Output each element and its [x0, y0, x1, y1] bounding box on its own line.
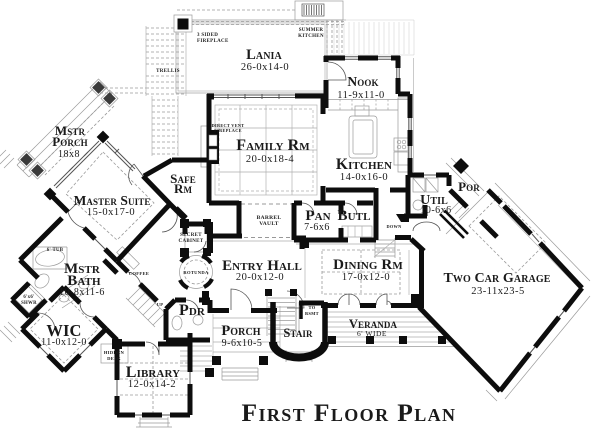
- svg-text:10-6x6: 10-6x6: [420, 205, 451, 216]
- svg-text:20-0x12-0: 20-0x12-0: [236, 272, 284, 283]
- svg-text:12-0x14-2: 12-0x14-2: [128, 379, 176, 390]
- svg-text:11-0x12-0: 11-0x12-0: [41, 337, 87, 348]
- svg-text:KITCHEN: KITCHEN: [298, 34, 324, 39]
- svg-text:DESK: DESK: [107, 356, 121, 361]
- svg-text:HIDDEN: HIDDEN: [104, 350, 125, 355]
- svg-text:SUMMER: SUMMER: [299, 28, 324, 33]
- svg-text:6' WIDE: 6' WIDE: [357, 329, 387, 338]
- svg-text:SHWR: SHWR: [21, 301, 37, 306]
- svg-text:11-9x11-0: 11-9x11-0: [337, 90, 384, 101]
- svg-text:TO: TO: [308, 305, 315, 310]
- svg-text:First Floor Plan: First Floor Plan: [242, 398, 457, 427]
- svg-text:Lania: Lania: [246, 47, 282, 63]
- svg-text:TRELLIS: TRELLIS: [156, 69, 180, 74]
- svg-text:BSMT: BSMT: [305, 311, 319, 316]
- svg-text:Family Rm: Family Rm: [236, 137, 310, 154]
- svg-text:COFFEE: COFFEE: [129, 271, 149, 276]
- svg-text:20-0x18-4: 20-0x18-4: [246, 154, 294, 165]
- svg-text:Porch: Porch: [221, 323, 260, 339]
- svg-text:Porch: Porch: [52, 134, 87, 149]
- svg-text:ROTUNDA: ROTUNDA: [183, 270, 209, 275]
- svg-text:Stair: Stair: [283, 326, 313, 340]
- svg-text:Pdr: Pdr: [179, 302, 206, 319]
- svg-text:14-0x16-0: 14-0x16-0: [340, 172, 388, 183]
- svg-text:FIREPLACE: FIREPLACE: [197, 39, 229, 44]
- svg-text:Dining Rm: Dining Rm: [333, 257, 403, 273]
- svg-text:6' TUB: 6' TUB: [47, 248, 64, 253]
- svg-text:Two Car Garage: Two Car Garage: [443, 271, 550, 286]
- svg-text:23-11x23-5: 23-11x23-5: [471, 286, 525, 297]
- svg-text:3 SIDED: 3 SIDED: [197, 33, 218, 38]
- svg-text:VAULT: VAULT: [259, 221, 279, 227]
- svg-text:DOWN: DOWN: [386, 224, 402, 229]
- svg-text:Por: Por: [458, 179, 480, 194]
- svg-text:10-8x11-6: 10-8x11-6: [59, 287, 105, 298]
- svg-text:CABINET: CABINET: [179, 239, 204, 244]
- svg-text:15-0x17-0: 15-0x17-0: [87, 207, 135, 218]
- svg-text:18x8: 18x8: [58, 149, 80, 160]
- svg-text:Rm: Rm: [174, 181, 192, 196]
- svg-text:17-0x12-0: 17-0x12-0: [342, 272, 390, 283]
- svg-text:Kitchen: Kitchen: [336, 156, 392, 173]
- svg-text:6'x6': 6'x6': [23, 295, 34, 300]
- svg-text:9-6x10-5: 9-6x10-5: [222, 338, 263, 349]
- svg-text:Master Suite: Master Suite: [74, 193, 151, 208]
- svg-text:7-6x6: 7-6x6: [304, 222, 330, 233]
- svg-text:SECRET: SECRET: [180, 233, 202, 238]
- svg-text:UP: UP: [157, 302, 164, 307]
- svg-text:Butl: Butl: [337, 208, 370, 224]
- svg-text:FIREPLACE: FIREPLACE: [214, 128, 242, 133]
- svg-text:Nook: Nook: [347, 74, 378, 89]
- svg-text:26-0x14-0: 26-0x14-0: [241, 62, 289, 73]
